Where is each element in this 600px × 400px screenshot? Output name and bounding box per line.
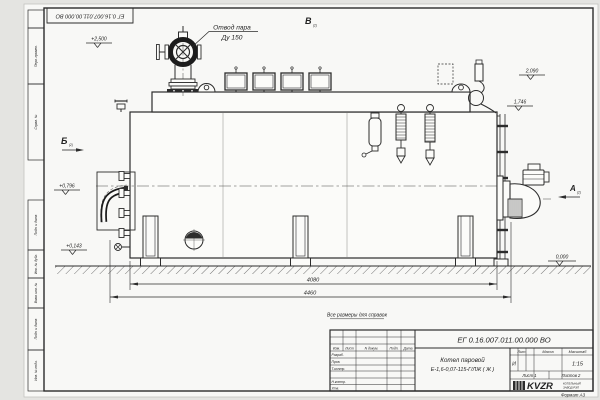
sheet-count: Листов 2	[561, 373, 581, 378]
reference-note: Все размеры для справок	[327, 313, 388, 319]
svg-text:Все размеры для справок: Все размеры для справок	[327, 313, 388, 319]
logo-text: KVZR	[527, 381, 553, 392]
side-label-inv-podl: Инв. № подл.	[34, 360, 38, 381]
svg-text:0,000: 0,000	[556, 255, 569, 261]
svg-text:А: А	[569, 184, 576, 193]
svg-text:Масса: Масса	[542, 350, 553, 354]
svg-text:+0,143: +0,143	[66, 244, 82, 250]
svg-text:Пров.: Пров.	[332, 360, 341, 364]
side-label-sprav-no: Справ. №	[34, 114, 38, 129]
lit-value: И	[512, 362, 516, 368]
side-label-vzam-inv: Взам. инв. №	[34, 282, 38, 303]
boiler-body	[130, 112, 497, 258]
side-label-podp-data-2: Подп. и дата	[34, 319, 38, 340]
svg-text:Изм.: Изм.	[333, 346, 340, 350]
svg-text:Разраб.: Разраб.	[332, 353, 344, 357]
svg-text:N докум.: N докум.	[365, 346, 379, 350]
ground	[55, 266, 591, 274]
sheet-number: Лист 1	[521, 373, 536, 378]
svg-text:Т.контр.: Т.контр.	[332, 367, 346, 371]
svg-text:2,090: 2,090	[525, 69, 539, 75]
svg-text:Утв.: Утв.	[332, 386, 340, 390]
product-designation: Е-1,6-0,07-115-Г/ЛЖ ( Ж )	[431, 367, 495, 373]
gauge-column-2	[425, 105, 435, 166]
svg-text:(2): (2)	[313, 24, 317, 28]
product-name: Котел паровой	[440, 357, 485, 364]
rotated-doc-number: ЕГ 0.16.007.011.00.000 ВО	[55, 13, 124, 19]
doc-number: ЕГ 0.16.007.011.00.000 ВО	[457, 336, 550, 345]
svg-text:В: В	[305, 16, 312, 26]
scale-value: 1:15	[572, 362, 584, 368]
svg-text:Н.контр.: Н.контр.	[332, 380, 346, 384]
burner-motor-cap	[528, 164, 540, 170]
support-leg	[141, 216, 161, 266]
svg-text:1,746: 1,746	[514, 100, 527, 106]
format-label: Формат А3	[561, 393, 586, 398]
support-leg	[291, 216, 311, 266]
steam-drum	[152, 92, 470, 112]
valve-handwheel	[157, 45, 160, 60]
svg-text:(2): (2)	[577, 191, 581, 195]
svg-text:Лист: Лист	[344, 346, 354, 350]
side-label-inv-dubl: Инв. № дубл.	[34, 254, 38, 274]
svg-text:Б: Б	[61, 136, 68, 146]
callout-line2: Ду 150	[221, 35, 243, 42]
svg-text:4080: 4080	[307, 278, 320, 284]
support-leg	[456, 216, 476, 266]
svg-text:Масштаб: Масштаб	[569, 350, 588, 354]
callout-line1: Отвод пара	[213, 24, 251, 32]
logo-caption-2: ЗАВОД РЭП	[563, 386, 580, 390]
side-label-podp-data-1: Подп. и дата	[34, 215, 38, 236]
burner-motor	[523, 170, 544, 185]
svg-text:Подп.: Подп.	[389, 346, 398, 350]
svg-text:+2,500: +2,500	[91, 37, 107, 43]
svg-text:(2): (2)	[69, 143, 73, 147]
boiler-drawing: Перв. примен. Справ. № Подп. и дата Инв.…	[0, 0, 600, 400]
svg-text:+0,796: +0,796	[59, 184, 75, 190]
svg-text:Лит.: Лит.	[517, 350, 527, 354]
svg-text:Дата: Дата	[403, 346, 413, 350]
side-label-perv-primen: Перв. примен.	[34, 45, 38, 67]
svg-text:4460: 4460	[304, 291, 317, 297]
